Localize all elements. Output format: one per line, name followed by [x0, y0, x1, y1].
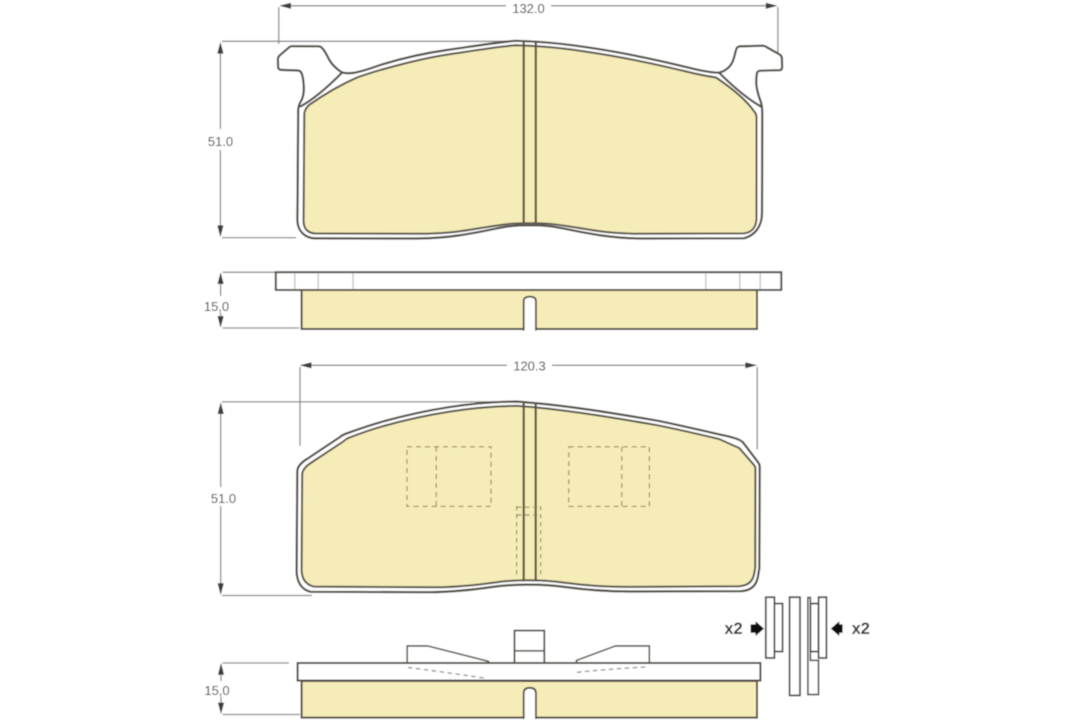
- svg-text:120.3: 120.3: [513, 359, 546, 374]
- svg-text:132.0: 132.0: [512, 1, 545, 16]
- svg-text:51.0: 51.0: [211, 491, 236, 506]
- svg-text:51.0: 51.0: [208, 134, 233, 149]
- svg-text:x2: x2: [724, 620, 742, 638]
- svg-text:15,0: 15,0: [204, 299, 229, 314]
- svg-text:15,0: 15,0: [204, 683, 229, 698]
- svg-text:x2: x2: [852, 620, 870, 638]
